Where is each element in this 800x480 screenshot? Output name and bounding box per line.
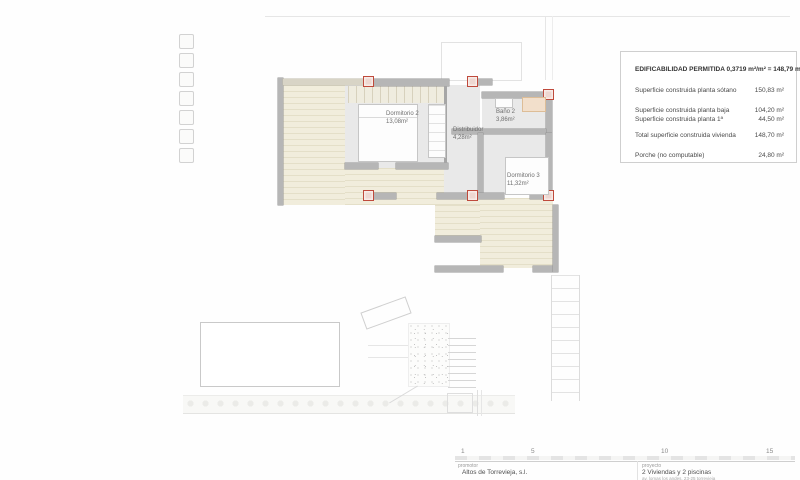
wall-segment [367, 79, 449, 86]
summary-box: EDIFICABILIDAD PERMITIDA 0,3719 m²/m² = … [620, 51, 797, 163]
column-marker [467, 190, 478, 201]
titleblock-divider [455, 461, 795, 462]
wall-segment [546, 100, 552, 133]
wall-segment [553, 205, 558, 272]
summary-row-value: 150,83 m² [755, 87, 784, 94]
washbasin-bano2 [495, 98, 513, 108]
wall-segment [478, 79, 492, 85]
room-area: 13,08m² [386, 118, 419, 126]
vegetation-patch [408, 323, 450, 387]
scale-tick: 5 [531, 448, 535, 455]
summary-row-value: 104,20 m² [755, 107, 784, 114]
shower-bano2 [522, 97, 546, 112]
wall-segment [437, 193, 467, 199]
room-area: 11,32m² [507, 180, 540, 188]
fence-post [179, 91, 194, 106]
wall-segment [435, 266, 503, 272]
summary-row-value: 24,80 m² [758, 152, 784, 159]
summary-row: Superficie construida planta 1ª 44,50 m² [635, 116, 784, 123]
summary-row-label: Superficie construida planta 1ª [635, 116, 723, 123]
fence-post [179, 72, 194, 87]
pool-outline [200, 322, 340, 387]
exterior-stair-ladder [551, 275, 580, 401]
terrace-right-step [435, 205, 480, 237]
titleblock-divider [637, 461, 638, 480]
wardrobe-dormitorio2 [428, 104, 446, 158]
upper-floor-outline [441, 42, 522, 81]
fence-post [179, 34, 194, 49]
column-marker [363, 76, 374, 87]
plot-boundary-line [265, 16, 790, 17]
summary-row: Superficie construida planta baja 104,20… [635, 107, 784, 114]
summary-row: Total superficie construida vivienda 148… [635, 132, 784, 139]
scale-ruler [455, 456, 795, 460]
room-name: Dormitorio 2 [386, 110, 419, 118]
plot-boundary-line [552, 16, 553, 80]
fence-post [179, 148, 194, 163]
summary-row-value: 44,50 m² [758, 116, 784, 123]
path-line [368, 357, 408, 358]
room-area: 3,86m² [496, 116, 515, 124]
project-name: 2 Viviendas y 2 piscinas [642, 469, 711, 476]
summary-row-label: Superficie construida planta baja [635, 107, 729, 114]
site-box-outline [447, 393, 473, 413]
scale-tick: 10 [661, 448, 668, 455]
summary-row-label: Superficie construida planta sótano [635, 87, 737, 94]
wall-segment [478, 193, 504, 199]
column-marker [363, 190, 374, 201]
summary-row-label: Total superficie construida vivienda [635, 132, 736, 139]
stair-treads [348, 86, 446, 103]
room-name: Distribuidor [453, 126, 483, 134]
terrace-left [283, 85, 345, 205]
room-name: Baño 2 [496, 108, 515, 116]
summary-title: EDIFICABILIDAD PERMITIDA 0,3719 m²/m² = … [635, 66, 784, 73]
path-line [368, 345, 408, 346]
room-area: 4,28m² [453, 134, 483, 142]
site-steps [448, 338, 476, 390]
wall-segment [374, 193, 396, 199]
room-label-bano2: Baño 2 3,86m² [496, 108, 515, 124]
summary-row-value: 148,70 m² [755, 132, 784, 139]
wall-segment [435, 236, 481, 242]
fence-post [179, 129, 194, 144]
scale-tick: 1 [461, 448, 465, 455]
floorplan-sheet: Dormitorio 2 13,08m² Baño 2 3,86m² Distr… [0, 0, 800, 480]
promoter-name: Altos de Torrevieja, s.l. [462, 469, 527, 476]
room-name: Dormitorio 3 [507, 172, 540, 180]
wall-segment [278, 78, 283, 205]
summary-row: Porche (no computable) 24,80 m² [635, 152, 784, 159]
planter-outline [360, 296, 411, 329]
room-label-distribuidor: Distribuidor 4,28m² [453, 126, 483, 142]
wall-segment [396, 163, 448, 169]
room-label-dormitorio3: Dormitorio 3 11,32m² [507, 172, 540, 188]
boundary-fence [179, 34, 194, 167]
terrace-right [480, 198, 553, 268]
project-address: av. lomas los andes, 23-25 torrevieja [642, 476, 715, 480]
room-label-dormitorio2: Dormitorio 2 13,08m² [386, 110, 419, 126]
fence-post [179, 53, 194, 68]
scale-tick: 15 [766, 448, 773, 455]
summary-row: Superficie construida planta sótano 150,… [635, 87, 784, 94]
fence-post [179, 110, 194, 125]
site-line [477, 390, 478, 416]
site-line [481, 390, 482, 416]
summary-row-label: Porche (no computable) [635, 152, 704, 159]
plot-boundary-line [545, 16, 546, 80]
column-marker [467, 76, 478, 87]
wall-segment [283, 79, 367, 85]
wall-segment [345, 163, 378, 169]
